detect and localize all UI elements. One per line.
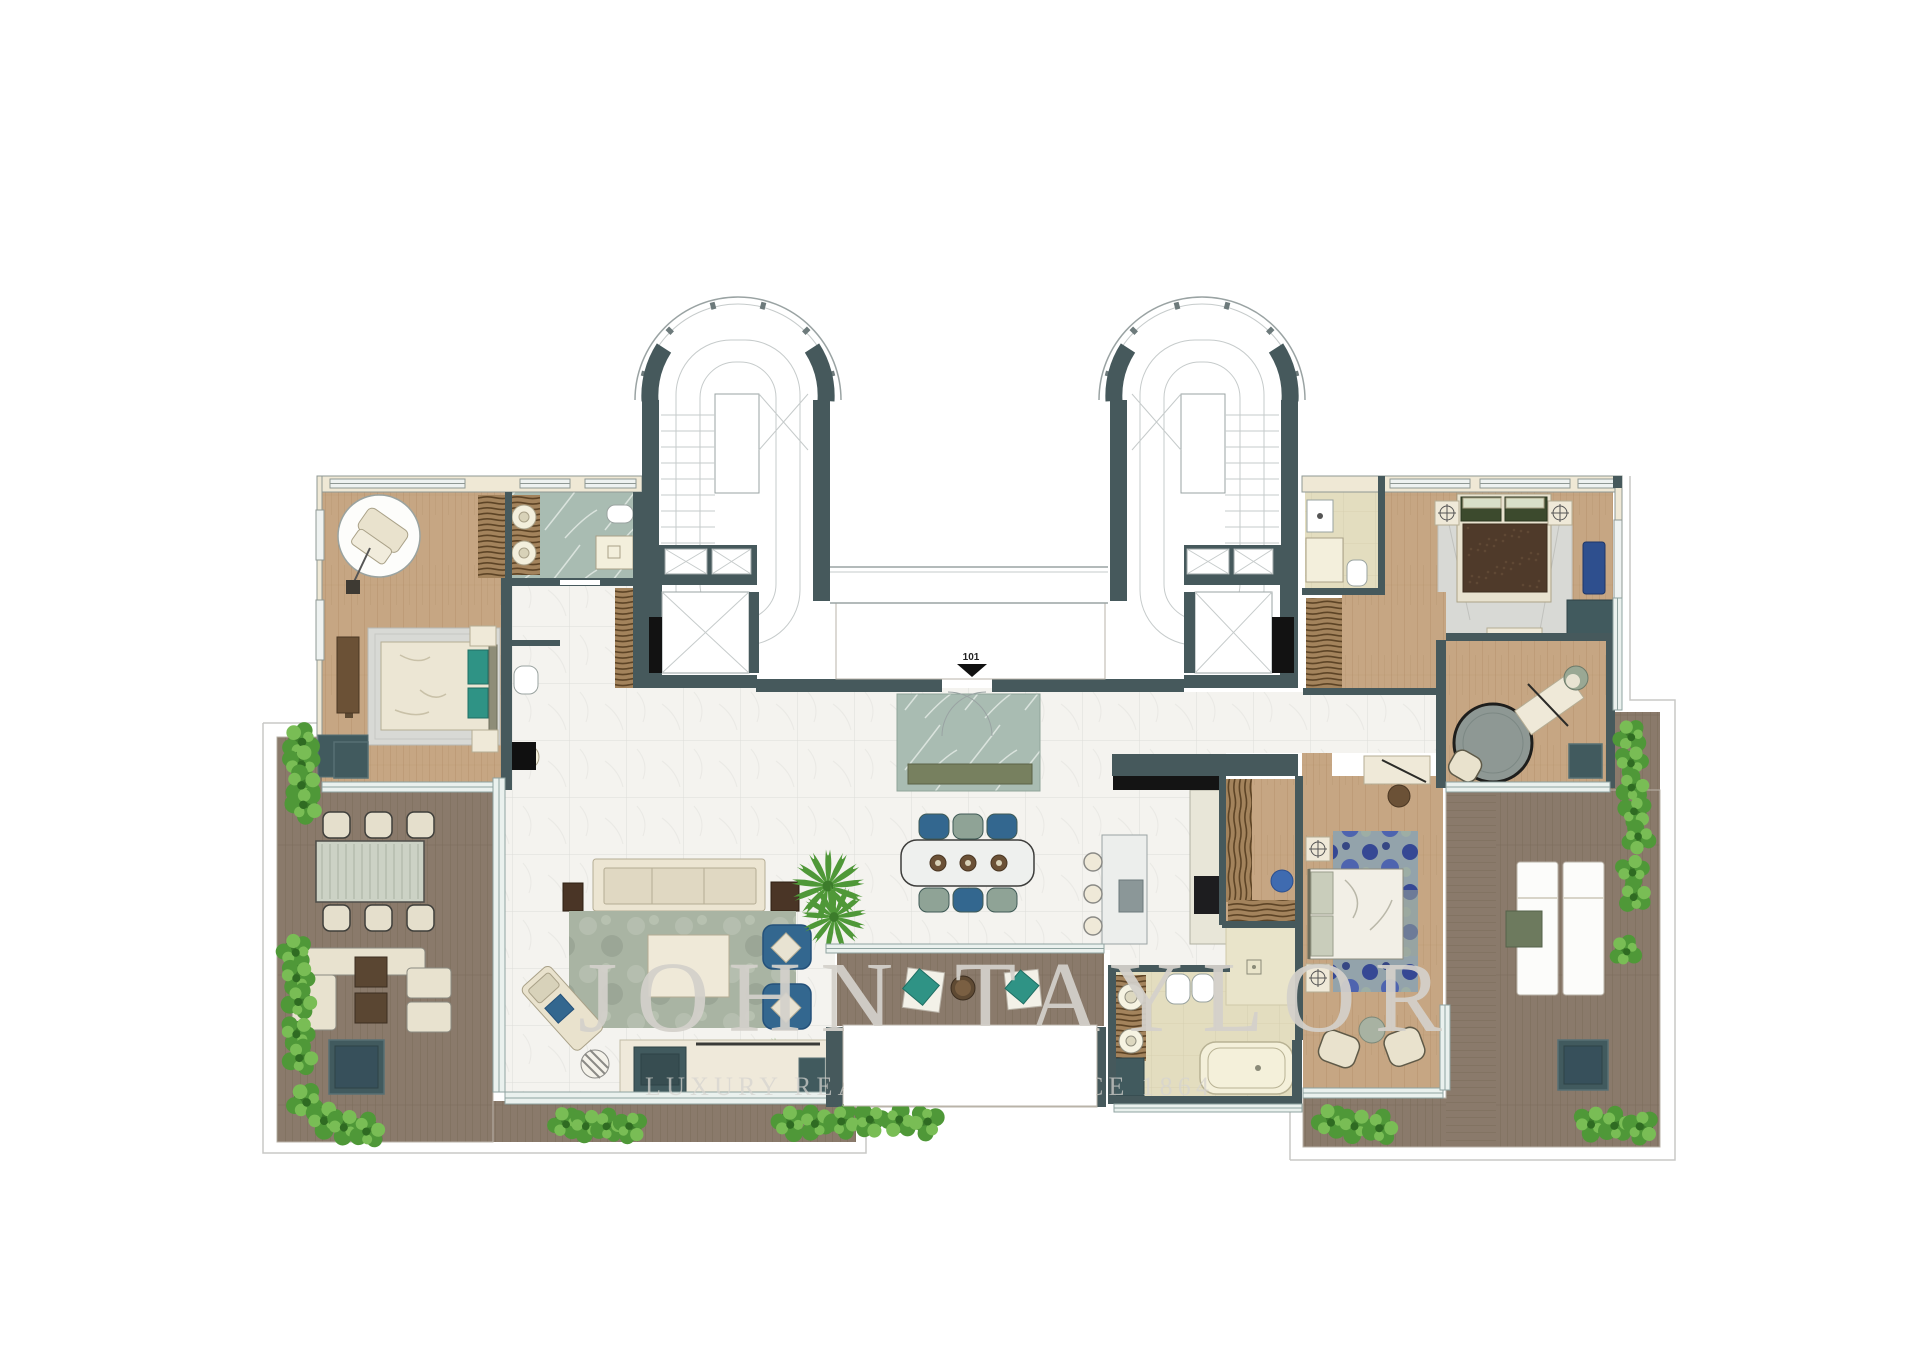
svg-text:101: 101 [963, 652, 980, 663]
